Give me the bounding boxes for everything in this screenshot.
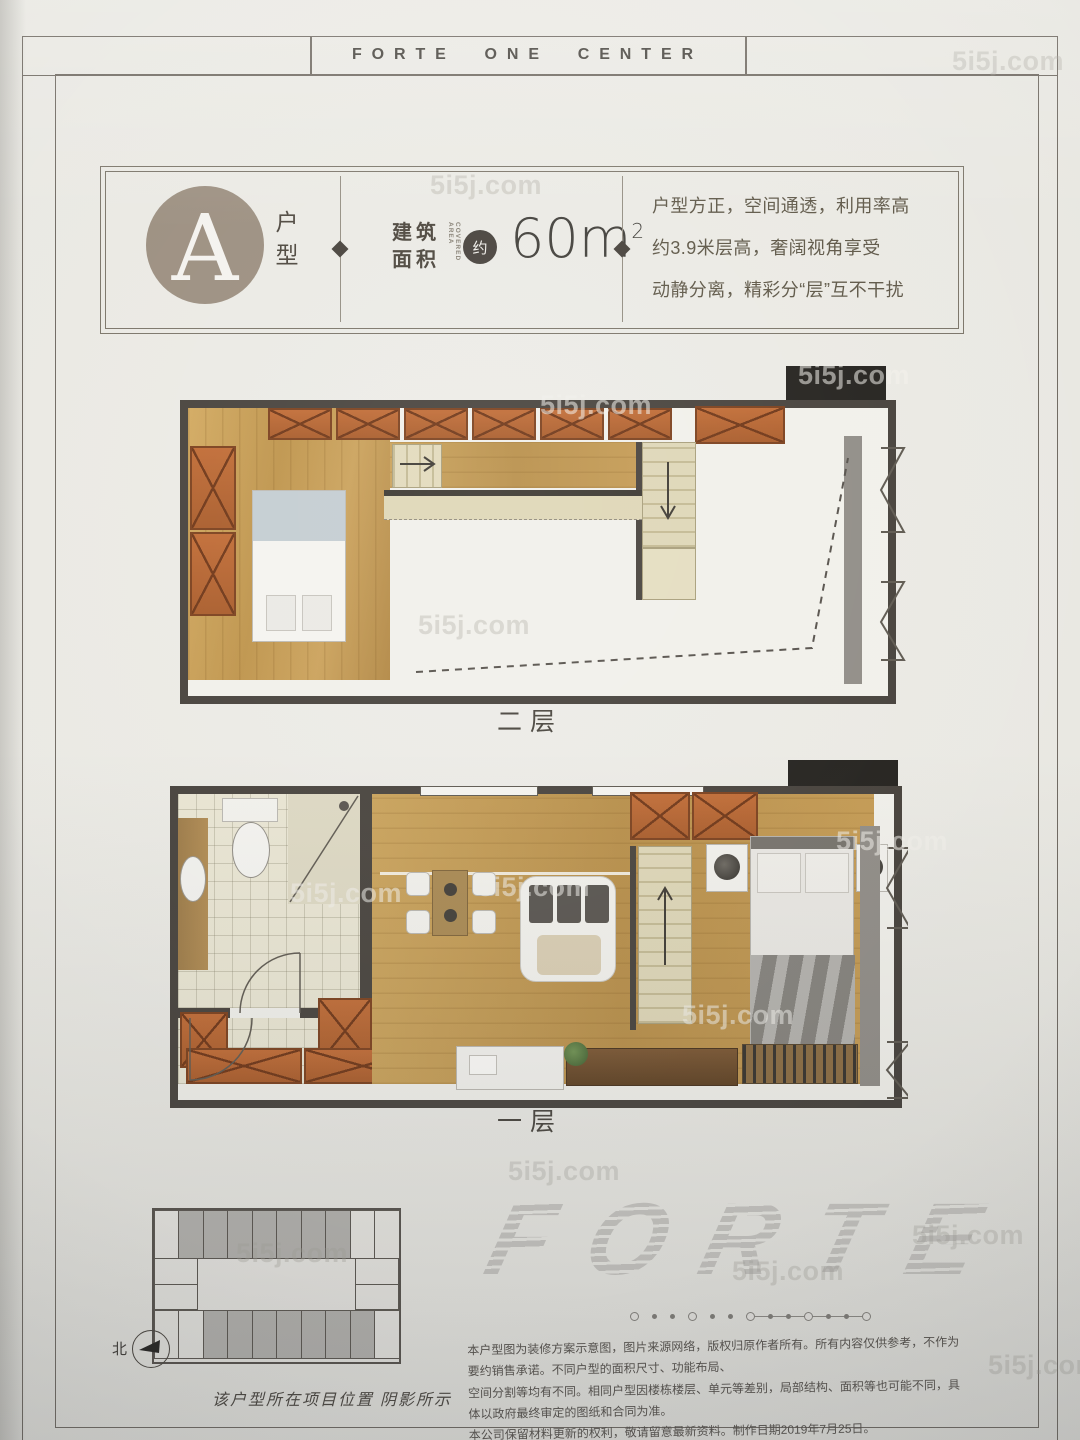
filled-dot bbox=[826, 1314, 831, 1319]
filled-dot bbox=[786, 1314, 791, 1319]
area-exponent: 2 bbox=[631, 219, 644, 243]
core-room bbox=[155, 1285, 197, 1310]
site-bottom-row bbox=[154, 1310, 399, 1358]
site-unit-cell bbox=[301, 1210, 327, 1259]
site-caption: 该户型所在项目位置 阴影所示 bbox=[212, 1386, 452, 1410]
site-unit-cell bbox=[252, 1310, 278, 1359]
site-unit-cell bbox=[301, 1310, 327, 1359]
dots-plain-group bbox=[630, 1312, 733, 1321]
unit-type-label: 户型 bbox=[268, 210, 302, 276]
ring-dot bbox=[746, 1312, 755, 1321]
area-number: 60m bbox=[510, 207, 631, 270]
filled-dot bbox=[710, 1314, 715, 1319]
site-left-core bbox=[154, 1258, 198, 1310]
site-right-core bbox=[355, 1258, 399, 1310]
north-label: 北 bbox=[112, 1338, 127, 1359]
site-middle-corridor bbox=[154, 1258, 399, 1310]
site-unit-cell bbox=[154, 1210, 180, 1259]
site-unit-cell bbox=[178, 1310, 204, 1359]
site-unit-cell bbox=[178, 1210, 204, 1259]
site-unit-cell bbox=[203, 1310, 229, 1359]
site-unit-cell bbox=[227, 1310, 253, 1359]
ring-dot bbox=[862, 1312, 871, 1321]
filled-dot bbox=[670, 1314, 675, 1319]
decorative-dots bbox=[630, 1310, 871, 1322]
floor-label-first: 一层 bbox=[430, 1102, 630, 1138]
core-room bbox=[356, 1259, 398, 1285]
core-room bbox=[155, 1259, 197, 1285]
site-unit-cell bbox=[276, 1310, 302, 1359]
ring-dot bbox=[630, 1312, 639, 1321]
filled-dot bbox=[768, 1314, 773, 1319]
filled-dot bbox=[728, 1314, 733, 1319]
site-unit-cell bbox=[252, 1210, 278, 1259]
site-unit-cell bbox=[276, 1210, 302, 1259]
second-floor-plan bbox=[178, 366, 906, 696]
area-value: 60m2 bbox=[510, 212, 644, 266]
floor-label-second: 二层 bbox=[430, 702, 630, 738]
core-room bbox=[356, 1285, 398, 1310]
entry-door-swing bbox=[190, 1018, 252, 1080]
feature-line-2: 约3.9米层高，奢阔视角享受 bbox=[652, 228, 952, 270]
area-label-line1: 建筑 bbox=[392, 220, 440, 247]
feature-line-3: 动静分离，精彩分“层”互不干扰 bbox=[652, 270, 952, 312]
site-unit-cell bbox=[227, 1210, 253, 1259]
header-band-divider-right bbox=[745, 36, 747, 74]
disclaimer: 本户型图为装修方案示意图，图片来源网络，版权归原作者所有。所有内容仅供参考，不作… bbox=[467, 1332, 971, 1440]
filled-dot bbox=[652, 1314, 657, 1319]
site-unit-cell bbox=[374, 1210, 400, 1259]
window-symbol bbox=[887, 1042, 908, 1098]
ring-dot bbox=[804, 1312, 813, 1321]
window-symbol bbox=[887, 848, 908, 928]
first-floor-plan bbox=[168, 760, 908, 1100]
site-unit-cell bbox=[374, 1310, 400, 1359]
unit-features: 户型方正，空间通透，利用率高 约3.9米层高，奢阔视角享受 动静分离，精彩分“层… bbox=[652, 186, 952, 311]
void-dashed-outline bbox=[416, 458, 848, 672]
bathroom-door-swing bbox=[240, 953, 300, 1013]
area-label-line2: 面积 bbox=[392, 247, 440, 274]
site-unit-cell bbox=[203, 1210, 229, 1259]
dots-linked-group bbox=[746, 1312, 871, 1321]
site-unit-cell bbox=[350, 1210, 376, 1259]
site-unit-cell bbox=[350, 1310, 376, 1359]
plan1-overlay bbox=[168, 760, 908, 1100]
north-compass-icon bbox=[132, 1330, 170, 1368]
ring-dot bbox=[688, 1312, 697, 1321]
approx-circle: 约 bbox=[463, 230, 497, 264]
plan2-overlay bbox=[178, 366, 906, 696]
window-symbol bbox=[881, 582, 904, 660]
unit-badge: A bbox=[146, 186, 264, 304]
stair-direction-arrow bbox=[400, 457, 434, 471]
unit-letter: A bbox=[172, 203, 238, 295]
stair-direction-arrow bbox=[661, 462, 675, 518]
shower-glass-line bbox=[290, 796, 358, 902]
site-plan bbox=[152, 1208, 401, 1364]
area-label-en: COVERED AREA bbox=[447, 222, 461, 278]
stair-direction-arrow bbox=[658, 888, 672, 965]
page-title: FORTE ONE CENTER bbox=[310, 36, 745, 74]
brochure-photo: FORTE ONE CENTER A 户型 建筑 面积 COVERED AREA… bbox=[0, 0, 1080, 1440]
feature-line-1: 户型方正，空间通透，利用率高 bbox=[652, 186, 952, 228]
filled-dot bbox=[844, 1314, 849, 1319]
shower-head bbox=[339, 801, 349, 811]
site-unit-cell bbox=[325, 1210, 351, 1259]
site-top-row bbox=[154, 1210, 399, 1258]
corridor bbox=[198, 1258, 355, 1310]
window-symbol bbox=[881, 448, 904, 532]
brand-logo-watermark: FORTE bbox=[477, 1188, 1026, 1290]
area-label: 建筑 面积 bbox=[392, 220, 440, 274]
site-unit-cell bbox=[325, 1310, 351, 1359]
